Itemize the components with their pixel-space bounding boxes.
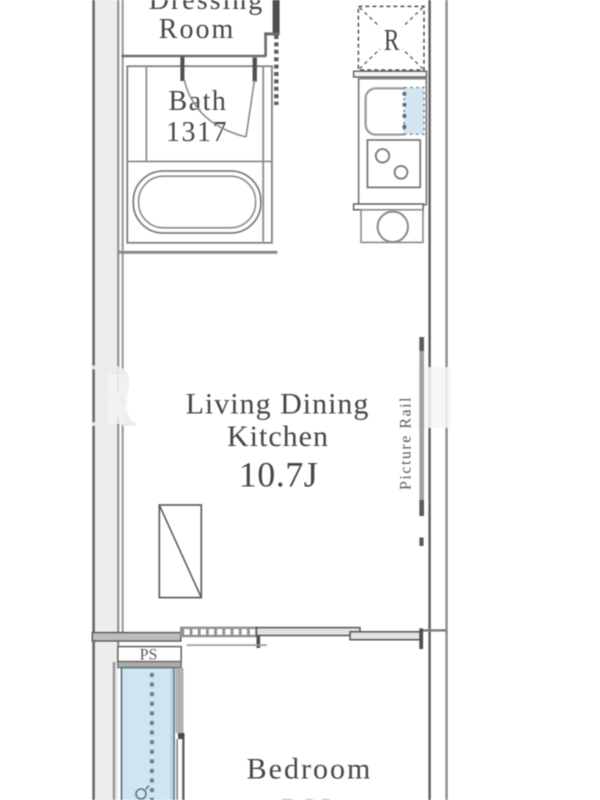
svg-text:R: R [384, 23, 400, 57]
svg-text:PS: PS [140, 647, 158, 664]
svg-text:Bath: Bath [169, 86, 228, 117]
svg-text:5.2J: 5.2J [280, 791, 331, 800]
svg-text:Picture Rail: Picture Rail [398, 396, 415, 490]
svg-text:Living Dining: Living Dining [186, 388, 370, 421]
svg-text:Bedroom: Bedroom [247, 753, 373, 786]
svg-text:Room: Room [159, 14, 235, 45]
svg-text:1317: 1317 [166, 117, 228, 148]
svg-text:10.7J: 10.7J [239, 455, 319, 495]
svg-text:Kitchen: Kitchen [227, 420, 329, 453]
